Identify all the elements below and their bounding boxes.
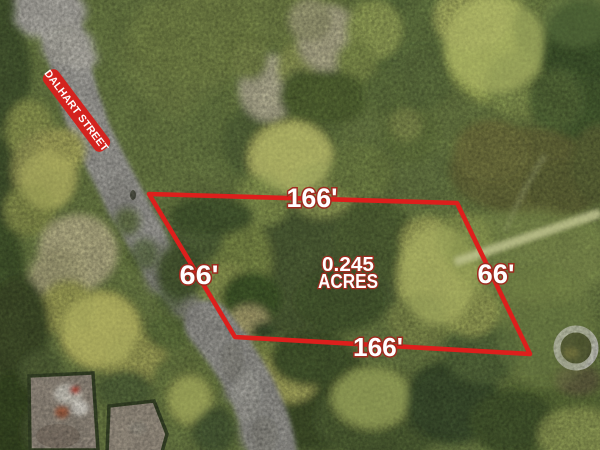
svg-text:166': 166'	[287, 183, 338, 213]
svg-text:166': 166'	[353, 332, 403, 362]
svg-text:66': 66'	[180, 260, 219, 290]
svg-text:ACRES: ACRES	[318, 271, 378, 293]
svg-text:66': 66'	[478, 259, 515, 289]
